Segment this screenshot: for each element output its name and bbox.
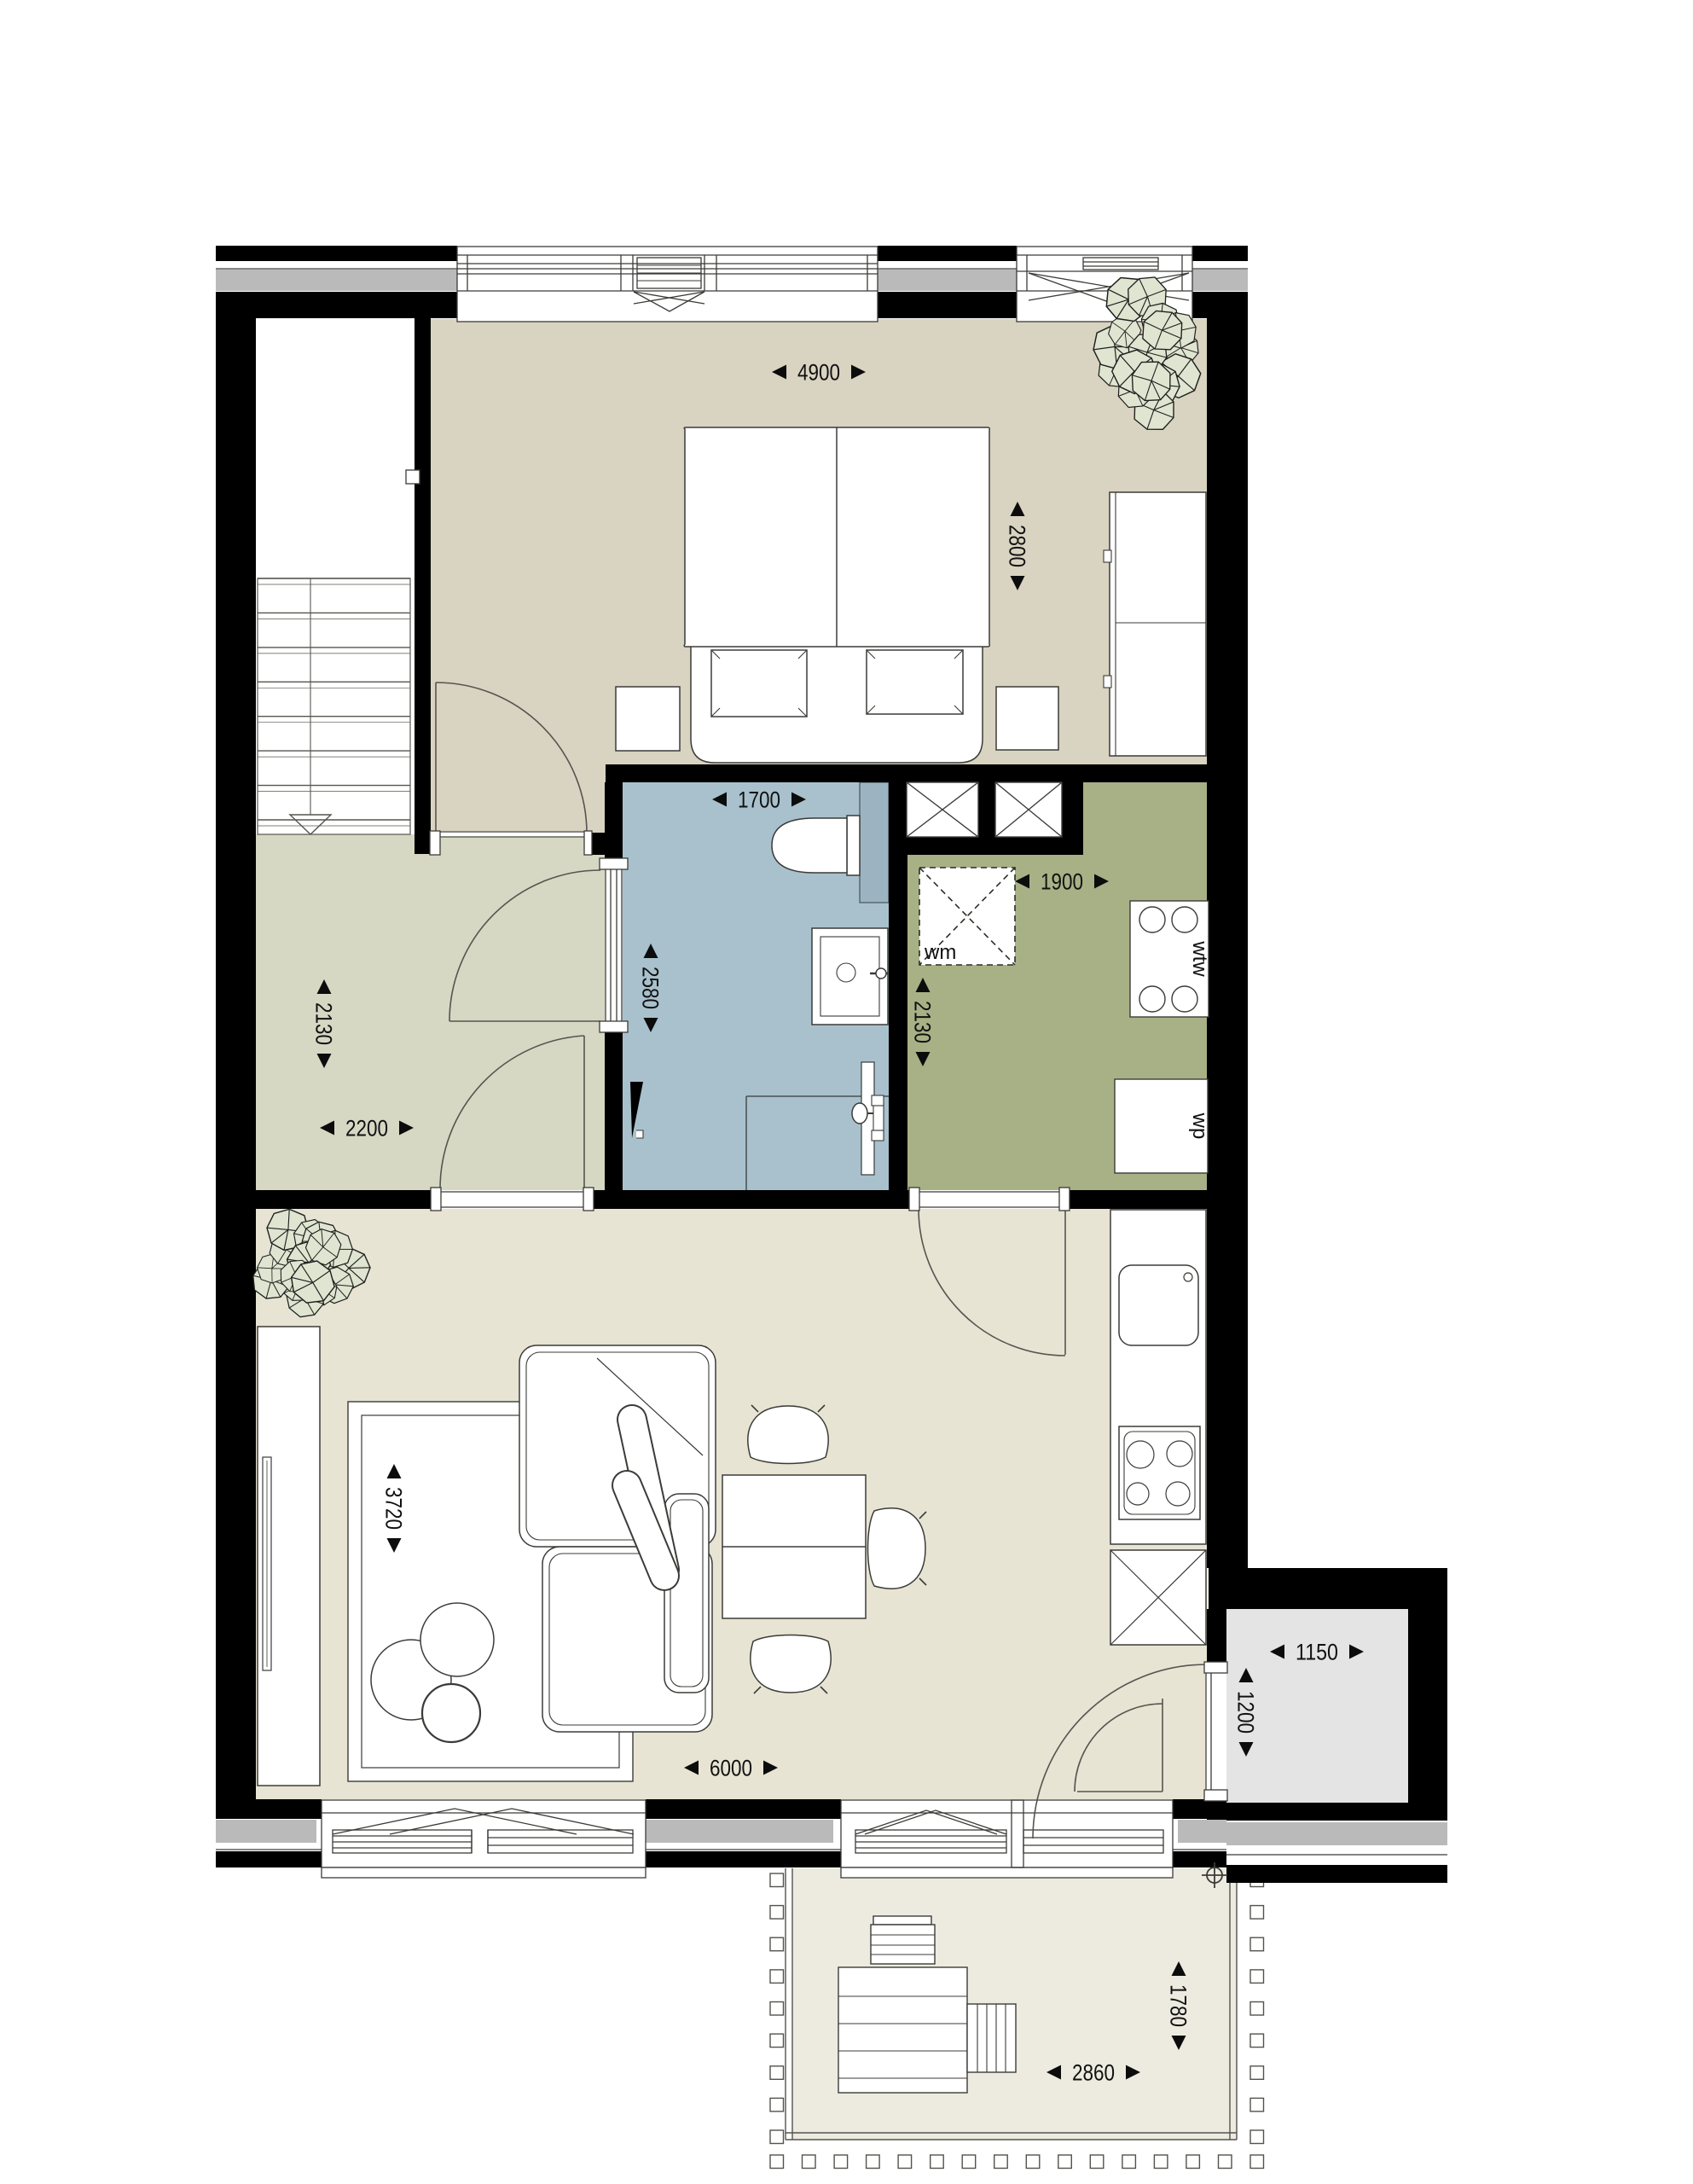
svg-text:wtw: wtw (1188, 940, 1211, 977)
svg-text:3720: 3720 (381, 1487, 407, 1530)
svg-text:wp: wp (1188, 1112, 1211, 1140)
svg-text:2860: 2860 (1072, 2060, 1115, 2086)
svg-text:1780: 1780 (1166, 1984, 1191, 2027)
svg-text:wm: wm (924, 941, 956, 964)
svg-text:2800: 2800 (1005, 525, 1030, 567)
svg-text:6000: 6000 (710, 1756, 752, 1781)
svg-text:2580: 2580 (638, 967, 664, 1009)
svg-text:2200: 2200 (345, 1116, 388, 1141)
svg-text:1700: 1700 (738, 787, 780, 813)
svg-text:1200: 1200 (1233, 1691, 1259, 1734)
svg-text:1900: 1900 (1041, 869, 1083, 895)
svg-text:2130: 2130 (311, 1002, 337, 1045)
svg-text:2130: 2130 (910, 1001, 936, 1043)
svg-text:4900: 4900 (797, 360, 840, 386)
svg-text:1150: 1150 (1296, 1640, 1338, 1665)
